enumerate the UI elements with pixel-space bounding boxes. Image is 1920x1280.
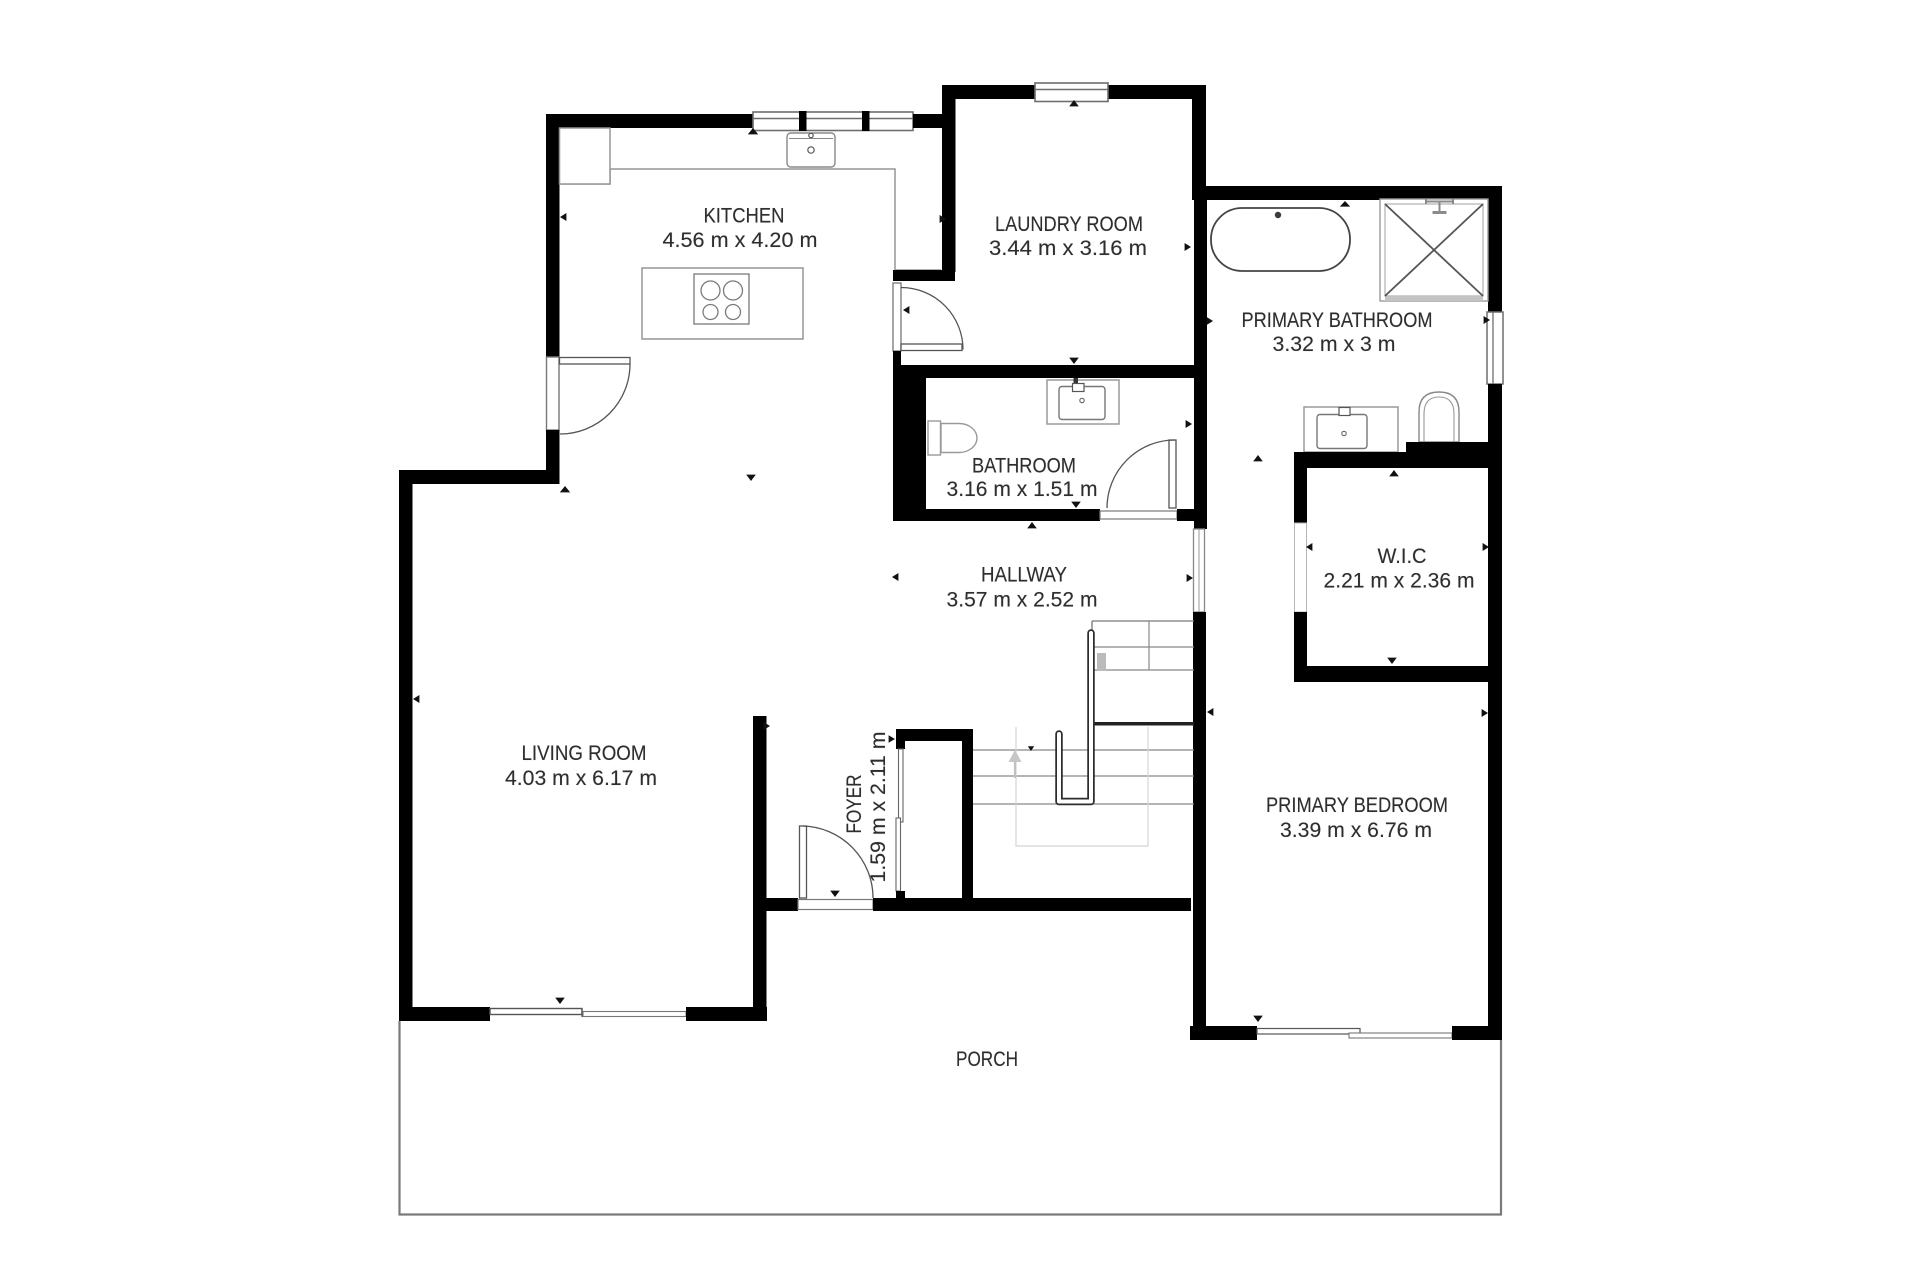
svg-text:LAUNDRY ROOM: LAUNDRY ROOM: [995, 213, 1143, 236]
svg-text:3.32 m x 3 m: 3.32 m x 3 m: [1273, 333, 1396, 356]
svg-text:3.44 m x 3.16 m: 3.44 m x 3.16 m: [989, 237, 1147, 260]
svg-text:FOYER: FOYER: [843, 775, 866, 834]
svg-text:PRIMARY BATHROOM: PRIMARY BATHROOM: [1242, 309, 1433, 332]
svg-text:3.39 m x 6.76 m: 3.39 m x 6.76 m: [1280, 819, 1432, 842]
svg-text:BATHROOM: BATHROOM: [972, 455, 1076, 478]
svg-text:W.I.C: W.I.C: [1378, 545, 1427, 568]
svg-text:KITCHEN: KITCHEN: [704, 205, 785, 228]
svg-text:2.21 m x 2.36 m: 2.21 m x 2.36 m: [1324, 570, 1475, 593]
svg-text:LIVING ROOM: LIVING ROOM: [522, 742, 647, 765]
svg-text:PORCH: PORCH: [956, 1048, 1018, 1071]
svg-text:1.59 m x 2.11 m: 1.59 m x 2.11 m: [867, 732, 890, 883]
svg-text:4.56 m x 4.20 m: 4.56 m x 4.20 m: [663, 229, 818, 252]
svg-text:HALLWAY: HALLWAY: [981, 564, 1067, 587]
svg-text:4.03 m x 6.17 m: 4.03 m x 6.17 m: [505, 767, 657, 790]
svg-text:3.57 m x 2.52 m: 3.57 m x 2.52 m: [947, 589, 1098, 612]
svg-text:3.16 m x 1.51 m: 3.16 m x 1.51 m: [947, 478, 1098, 501]
svg-text:PRIMARY BEDROOM: PRIMARY BEDROOM: [1266, 794, 1448, 817]
